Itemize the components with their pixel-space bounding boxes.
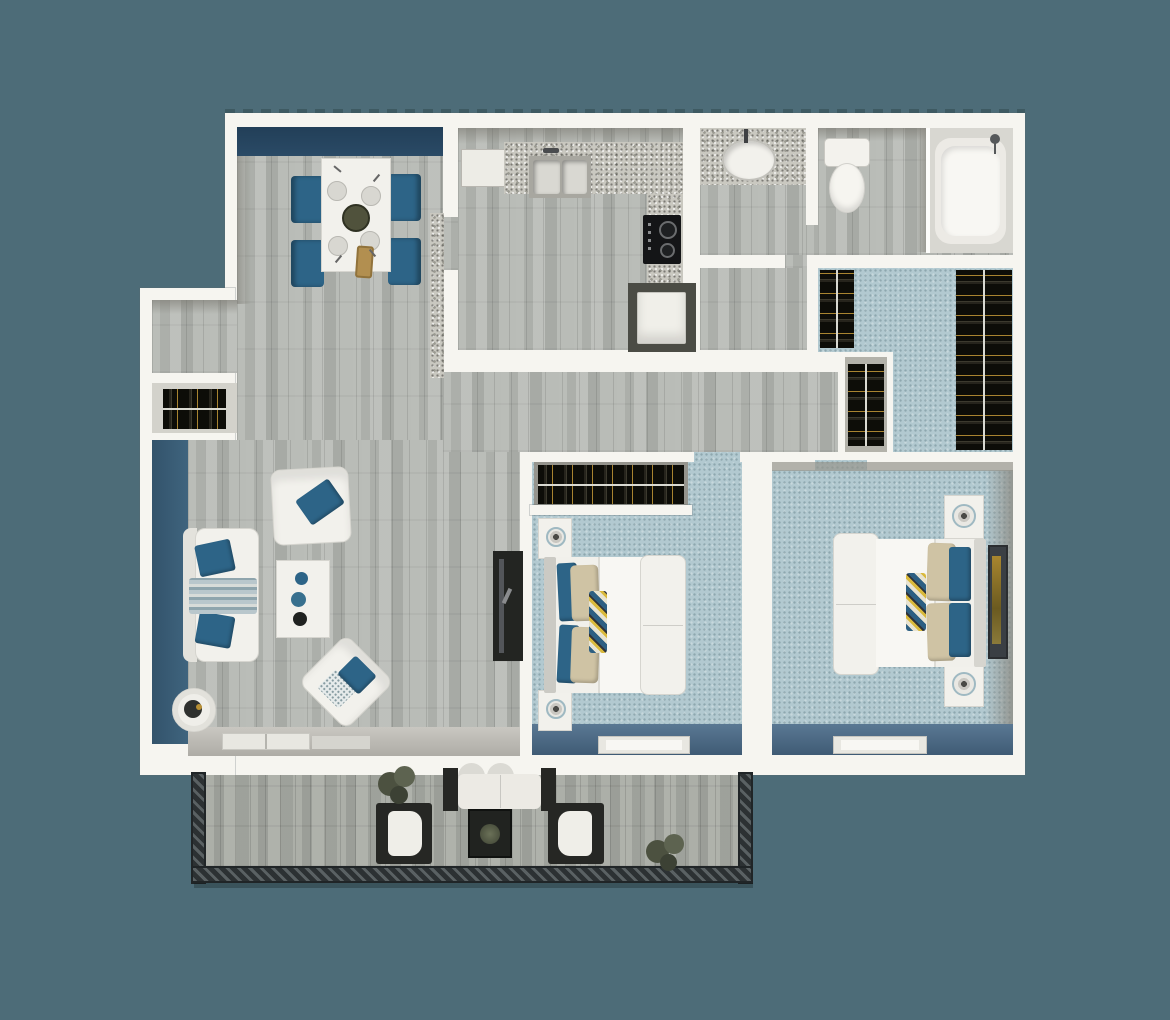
master-wall-art <box>992 556 1001 644</box>
bedroom1-pillow-accent <box>589 591 607 653</box>
patio-shadow <box>194 883 753 888</box>
dining-chair <box>388 238 421 285</box>
stove-burner <box>659 221 677 239</box>
patio-sliding-door-seam <box>265 734 267 749</box>
bedroom1-footboard-bench <box>640 555 686 695</box>
upper-hall-floor <box>700 268 807 350</box>
coffee-table-vase <box>291 592 306 607</box>
side-table-decor-gold <box>196 704 202 710</box>
dining-left-wall-face <box>237 156 251 304</box>
bedroom1-closet-clothes <box>538 465 684 504</box>
sink-basin <box>533 160 560 194</box>
dinner-plate <box>327 181 347 201</box>
master-lamp <box>952 672 976 696</box>
sink-basin <box>562 160 587 194</box>
patio-plant <box>664 834 684 854</box>
vanity-faucet <box>744 129 748 143</box>
bedroom1-lamp <box>546 699 566 719</box>
patio-armchair-cushion <box>558 811 592 856</box>
top-wall-dashed-edge <box>225 109 1025 113</box>
toilet-bowl <box>829 163 865 213</box>
bedroom1-closet-wall <box>530 505 692 515</box>
tv-screen <box>499 559 504 653</box>
patio-armchair-cushion <box>388 811 422 856</box>
tv-stand <box>493 551 523 661</box>
master-lamp <box>952 504 976 528</box>
patio-door-threshold <box>312 736 370 749</box>
dining-accent-wall <box>237 127 443 156</box>
corridor-floor <box>443 372 838 452</box>
bedroom1-headboard <box>544 557 556 693</box>
master-pillow-blue <box>949 603 971 657</box>
floor-plan-canvas <box>0 0 1170 1020</box>
dinner-plate <box>328 236 348 256</box>
master-pillow-blue <box>949 547 971 601</box>
dining-chair <box>388 174 421 221</box>
vanity-sink <box>722 139 776 181</box>
bath-hall-door-opening <box>785 255 807 268</box>
master-window-sill <box>841 740 919 750</box>
patio-loveseat-seat <box>458 774 541 809</box>
stove-burner <box>660 243 675 258</box>
bathtub-basin <box>941 146 1000 236</box>
vanity-door-opening <box>806 225 818 255</box>
master-pillow-accent <box>906 573 926 631</box>
shower-curtain <box>926 128 930 253</box>
patio-plant <box>660 854 677 871</box>
coffee-table-vase <box>295 572 308 585</box>
dinner-plate <box>361 186 381 206</box>
kitchen-door-opening <box>443 217 458 270</box>
bedroom1-lamp <box>546 527 566 547</box>
stove-knobs <box>648 222 651 250</box>
linen-closet-clothes <box>848 364 884 446</box>
coat-closet-clothes <box>163 389 226 429</box>
patio-loveseat-arm <box>443 768 458 811</box>
sofa-pillow-blue <box>194 611 235 649</box>
table-centerpiece <box>342 204 370 232</box>
walkin-clothes-rack-right <box>956 270 1012 450</box>
dining-chair <box>291 240 324 287</box>
washer <box>637 292 686 344</box>
entry-top-wall-face <box>152 300 237 314</box>
bedroom1-door-opening <box>694 452 740 462</box>
walkin-clothes-rack-left <box>820 270 854 348</box>
patio-table-plant <box>480 824 500 844</box>
kitchen-faucet <box>543 148 559 153</box>
sofa-throw-blanket <box>189 578 257 614</box>
coffee-table-bowl <box>293 612 307 626</box>
bedroom1-window-sill <box>606 740 682 750</box>
dining-chair <box>291 176 324 223</box>
central-hall-floor <box>237 300 443 444</box>
kitchen-entry-runner <box>430 213 444 378</box>
master-footboard-bench <box>833 533 879 675</box>
master-headboard <box>974 539 986 667</box>
master-top-wall-face <box>772 462 1013 471</box>
patio-plant <box>390 786 408 804</box>
fridge <box>461 149 506 187</box>
shower-arm <box>994 142 996 154</box>
patio-plant <box>394 766 415 787</box>
